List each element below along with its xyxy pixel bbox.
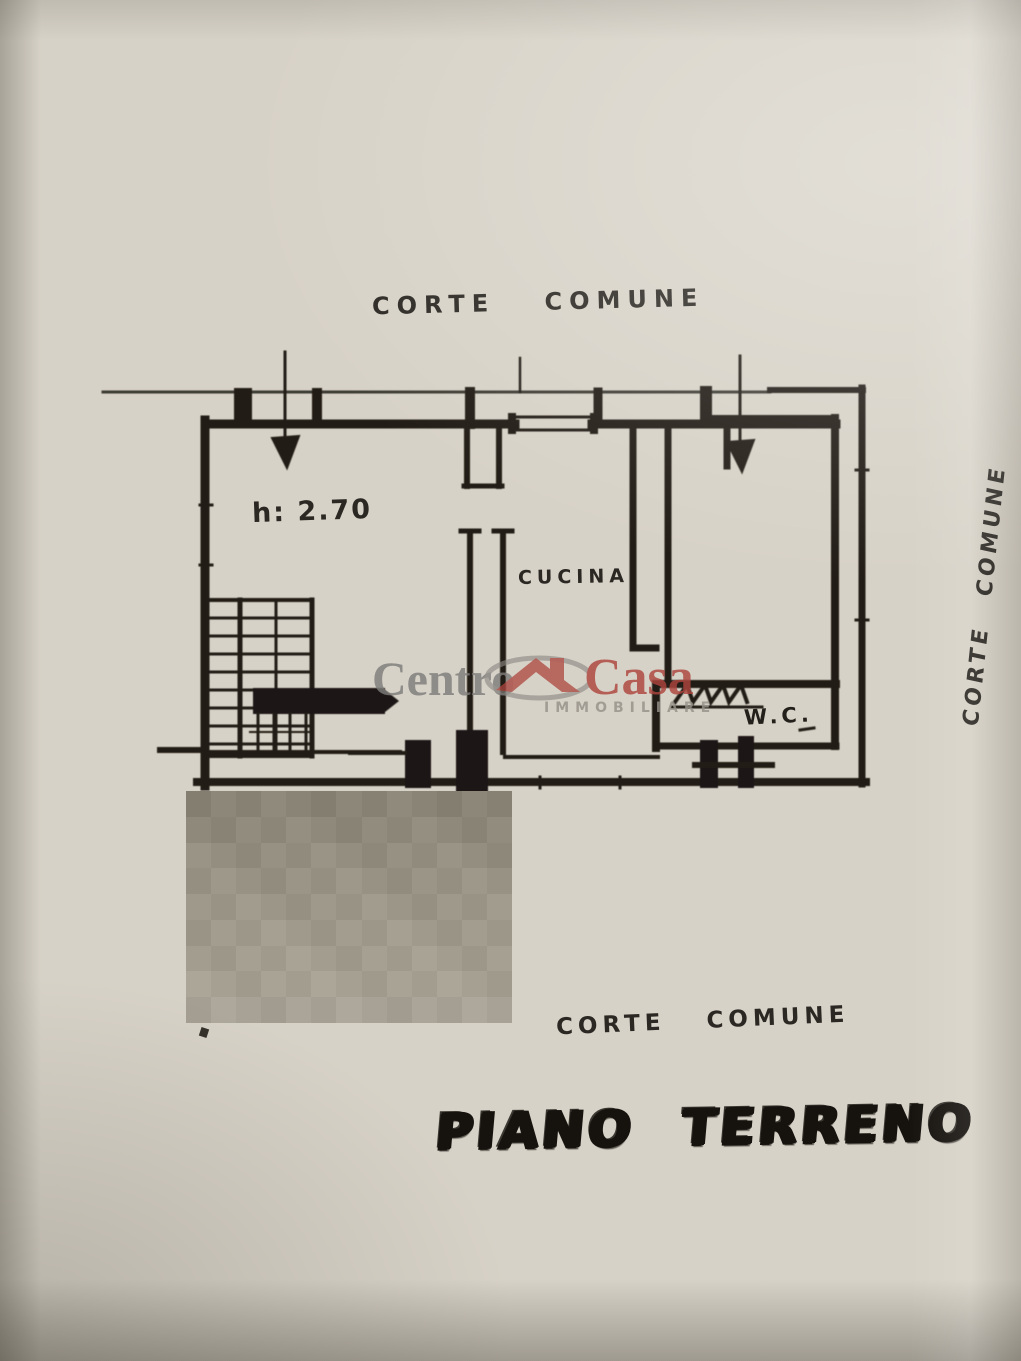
redaction-pixel — [412, 920, 437, 946]
redaction-pixel — [362, 791, 387, 817]
redaction-pixel — [286, 817, 311, 843]
redaction-pixel — [186, 997, 211, 1023]
agency-watermark: Centro Casa IMMOBILIARE — [372, 648, 772, 723]
redaction-pixel — [311, 791, 336, 817]
redaction-pixel — [336, 971, 361, 997]
redaction-pixel — [412, 894, 437, 920]
redaction-pixel — [286, 894, 311, 920]
redaction-pixel — [211, 946, 236, 972]
redaction-pixel — [286, 971, 311, 997]
redaction-pixel — [487, 868, 512, 894]
redaction-pixel — [311, 817, 336, 843]
redaction-pixel — [362, 843, 387, 869]
redaction-pixel — [286, 791, 311, 817]
redaction-pixel — [437, 894, 462, 920]
redaction-pixel — [311, 997, 336, 1023]
scanned-floor-plan-page: CORTE COMUNE h: 2.70 CUCINA W.C. CORTE C… — [0, 0, 1021, 1361]
redaction-pixel — [211, 894, 236, 920]
redaction-pixel — [336, 920, 361, 946]
redaction-pixel — [437, 971, 462, 997]
redaction-pixel — [336, 894, 361, 920]
redaction-pixel — [462, 843, 487, 869]
redaction-pixel — [336, 997, 361, 1023]
redaction-pixel — [286, 868, 311, 894]
redaction-pixel — [387, 894, 412, 920]
redaction-pixel — [211, 868, 236, 894]
redaction-pixel — [437, 817, 462, 843]
redaction-pixel — [261, 971, 286, 997]
redaction-pixel — [462, 791, 487, 817]
redaction-pixel — [186, 791, 211, 817]
redaction-pixel — [437, 946, 462, 972]
redaction-pixel — [261, 997, 286, 1023]
redaction-pixel — [261, 843, 286, 869]
redaction-pixel — [412, 817, 437, 843]
redaction-pixel — [412, 946, 437, 972]
redaction-pixel — [211, 971, 236, 997]
redaction-pixel — [462, 920, 487, 946]
redaction-pixel — [311, 946, 336, 972]
redaction-pixel — [336, 868, 361, 894]
redaction-pixel — [311, 868, 336, 894]
label-floor-title: PIANO TERRENO — [433, 1093, 976, 1160]
redaction-pixel — [387, 920, 412, 946]
redaction-pixel — [261, 791, 286, 817]
redaction-pixel — [362, 894, 387, 920]
redaction-pixel — [211, 791, 236, 817]
redaction-pixel — [437, 843, 462, 869]
redaction-pixel — [186, 843, 211, 869]
redaction-pixel — [487, 971, 512, 997]
redaction-pixel — [412, 791, 437, 817]
redaction-pixel — [211, 997, 236, 1023]
redaction-pixel — [462, 997, 487, 1023]
watermark-text-casa: Casa — [584, 648, 694, 707]
redaction-pixel — [487, 843, 512, 869]
redaction-pixel — [261, 920, 286, 946]
redaction-pixel — [412, 868, 437, 894]
redaction-pixel — [462, 894, 487, 920]
redaction-pixel — [362, 868, 387, 894]
redaction-pixel — [286, 843, 311, 869]
redaction-pixel — [211, 817, 236, 843]
redaction-pixel — [311, 971, 336, 997]
redaction-pixel — [487, 997, 512, 1023]
redaction-pixel — [261, 894, 286, 920]
redaction-pixel — [462, 971, 487, 997]
redaction-pixel — [286, 946, 311, 972]
watermark-subtitle: IMMOBILIARE — [544, 700, 716, 716]
redaction-pixel — [236, 920, 261, 946]
redaction-pixel — [387, 843, 412, 869]
redacted-area — [186, 791, 512, 1023]
redaction-pixel — [261, 868, 286, 894]
redaction-pixel — [487, 920, 512, 946]
redaction-pixel — [236, 843, 261, 869]
redaction-pixel — [286, 997, 311, 1023]
redaction-pixel — [487, 817, 512, 843]
redaction-pixel — [437, 997, 462, 1023]
redaction-pixel — [311, 843, 336, 869]
redaction-pixel — [236, 971, 261, 997]
redaction-pixel — [412, 971, 437, 997]
redaction-pixel — [487, 894, 512, 920]
redaction-pixel — [462, 946, 487, 972]
redaction-pixel — [236, 817, 261, 843]
redaction-pixel — [462, 868, 487, 894]
entrance-arrow-icon — [727, 356, 754, 472]
redaction-pixel — [362, 971, 387, 997]
redaction-pixel — [362, 817, 387, 843]
redaction-pixel — [336, 817, 361, 843]
redaction-pixel — [186, 817, 211, 843]
redaction-pixel — [236, 997, 261, 1023]
redaction-pixel — [437, 920, 462, 946]
redaction-pixel — [387, 817, 412, 843]
redaction-pixel — [236, 791, 261, 817]
redaction-pixel — [412, 997, 437, 1023]
redaction-pixel — [186, 946, 211, 972]
redaction-pixel — [387, 971, 412, 997]
redaction-pixel — [487, 791, 512, 817]
redaction-pixel — [286, 920, 311, 946]
label-kitchen: CUCINA — [518, 565, 629, 589]
redaction-pixel — [437, 791, 462, 817]
redaction-pixel — [261, 946, 286, 972]
redaction-pixel — [311, 894, 336, 920]
label-ceiling-height: h: 2.70 — [251, 494, 372, 529]
redaction-pixel — [186, 971, 211, 997]
redaction-pixel — [362, 946, 387, 972]
entrance-arrow-icon — [272, 352, 299, 468]
redaction-pixel — [437, 868, 462, 894]
redaction-pixel — [387, 868, 412, 894]
redaction-pixel — [261, 817, 286, 843]
redaction-pixel — [236, 894, 261, 920]
house-roof-icon — [484, 646, 594, 704]
redaction-pixel — [336, 843, 361, 869]
redaction-pixel — [336, 791, 361, 817]
redaction-pixel — [211, 843, 236, 869]
redaction-pixel — [487, 946, 512, 972]
redaction-pixel — [236, 946, 261, 972]
redaction-pixel — [311, 920, 336, 946]
redaction-pixel — [387, 791, 412, 817]
redaction-pixel — [462, 817, 487, 843]
redaction-pixel — [336, 946, 361, 972]
redaction-pixel — [362, 997, 387, 1023]
redaction-pixel — [412, 843, 437, 869]
redaction-pixel — [186, 894, 211, 920]
redaction-pixel — [236, 868, 261, 894]
redaction-pixel — [387, 997, 412, 1023]
redaction-pixel — [186, 868, 211, 894]
redaction-pixel — [211, 920, 236, 946]
redaction-pixel — [186, 920, 211, 946]
redaction-pixel — [387, 946, 412, 972]
redaction-pixel — [362, 920, 387, 946]
